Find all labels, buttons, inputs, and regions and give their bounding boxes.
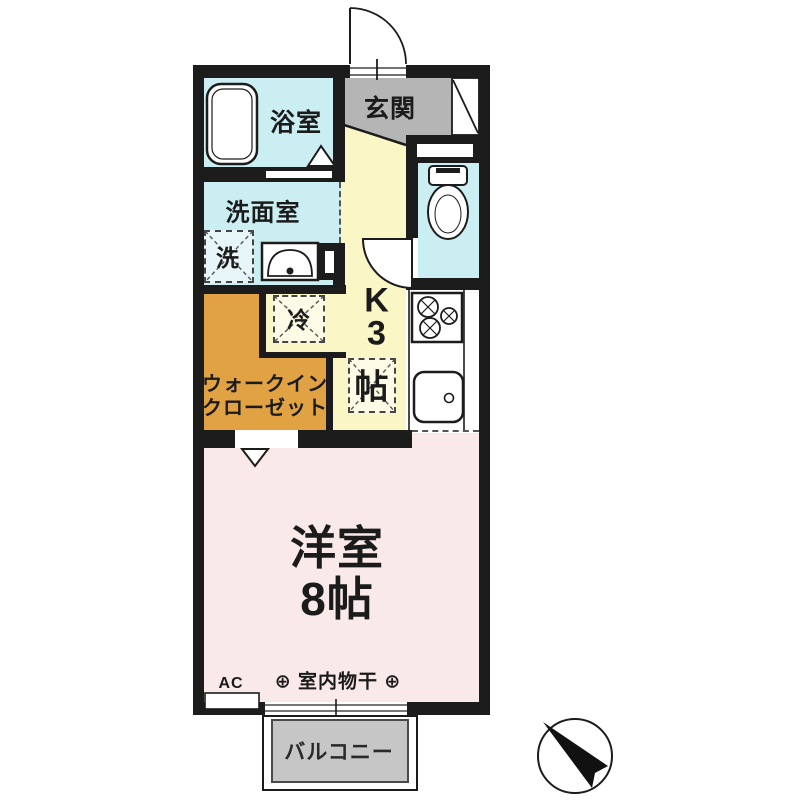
ac-label: AC <box>218 675 243 693</box>
room-bedroom-ext <box>412 433 479 448</box>
washroom-hall-door-dashed <box>339 182 341 243</box>
washroom-label: 洗面室 <box>226 193 301 228</box>
vanity-side-pocket <box>318 243 342 280</box>
washing-machine-label: 洗 <box>216 239 240 273</box>
kitchen-label-jo: 帖 <box>355 360 390 409</box>
bedroom-size-label: 8帖 <box>300 563 374 629</box>
wall-top-right <box>406 65 490 78</box>
stove-icon <box>412 293 462 342</box>
wall-bedroom-top-a <box>193 430 235 448</box>
balcony-label: バルコニー <box>284 736 394 766</box>
wall-bath-entrance <box>333 65 345 182</box>
compass-icon <box>538 719 612 793</box>
wall-bottom-right <box>407 702 490 715</box>
floor-plan: 浴室 玄関 洗面室 洗 冷 K 3 帖 ウォークイン クローゼット 洋室 8帖 … <box>0 0 800 800</box>
kitchen-counter <box>409 290 464 430</box>
closet-label-line2: クローゼット <box>202 392 328 421</box>
kitchen-label-3: 3 <box>367 315 387 354</box>
shoe-cabinet <box>452 78 479 135</box>
room-kitchen-strip <box>333 358 341 430</box>
wall-toilet-bottom <box>406 278 490 290</box>
room-toilet <box>418 163 479 278</box>
wall-washroom-bottom <box>204 285 346 294</box>
sink-icon <box>414 372 463 422</box>
kitchen-bedroom-dashed <box>412 430 479 432</box>
bathroom-label: 浴室 <box>270 103 322 139</box>
wall-toilet-left <box>406 150 418 238</box>
fridge-label: 冷 <box>287 301 311 335</box>
wall-bath-bottom <box>204 167 345 182</box>
wall-top-left <box>193 65 350 78</box>
closet-door-opening <box>235 430 298 448</box>
wall-bottom-left <box>193 702 265 715</box>
entrance-door-arc-icon <box>350 8 406 80</box>
wall-closet-notch-right <box>259 292 266 358</box>
entrance-label: 玄関 <box>364 89 416 125</box>
drying-label: ⊕ 室内物干 ⊕ <box>275 667 401 694</box>
wall-bedroom-top-b <box>298 430 412 448</box>
wall-right <box>479 65 490 715</box>
